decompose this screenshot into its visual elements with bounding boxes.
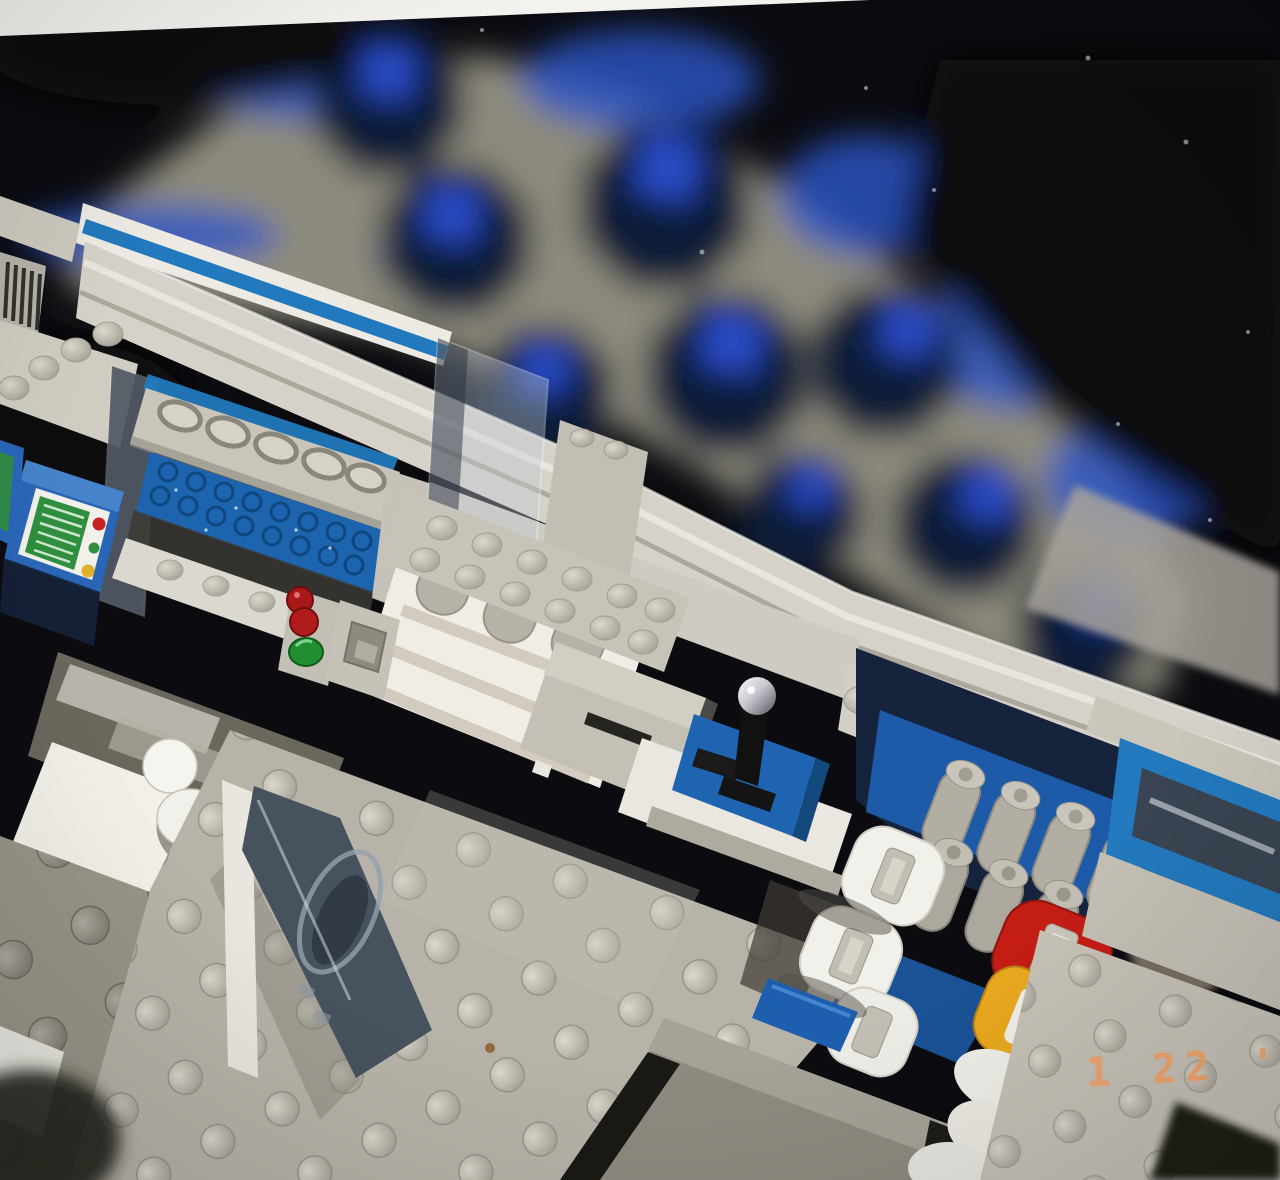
vignette (0, 0, 1280, 1180)
photo-frame: 1 22 '0 1 22 '0 (0, 0, 1280, 1180)
lego-photo: 1 22 '0 1 22 '0 (0, 0, 1280, 1180)
